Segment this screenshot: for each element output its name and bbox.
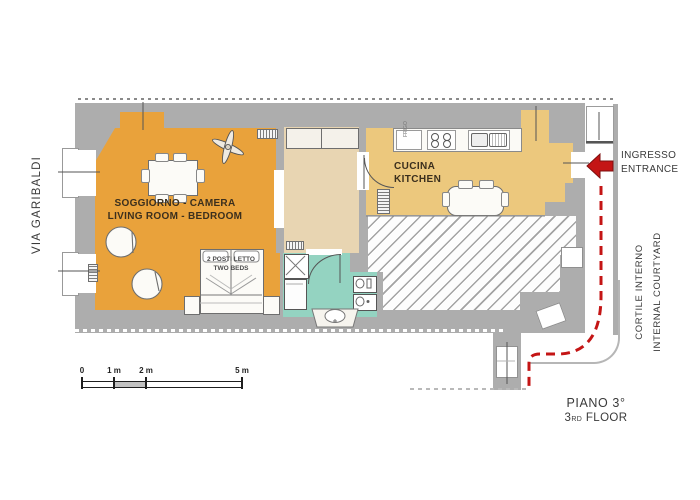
floor-label-it: PIANO 3°	[550, 395, 642, 411]
ceiling-fan-icon	[211, 130, 245, 165]
kitchen-label: CUCINA KITCHEN	[394, 160, 464, 186]
kitchen-label-it: CUCINA	[394, 160, 464, 173]
scale-label-2m: 2 m	[134, 366, 158, 375]
beds-label-en: TWO BEDS	[201, 264, 261, 273]
scale-tick	[113, 377, 115, 389]
entrance-label-en: ENTRANCE	[621, 163, 699, 177]
scale-bar-segment	[114, 382, 146, 387]
beds-label-it: 2 POSTI LETTO	[201, 255, 261, 264]
route-path	[529, 186, 601, 390]
street-label: VIA GARIBALDI	[31, 117, 45, 293]
entrance-label-it: INGRESSO	[621, 149, 699, 163]
armchair-icons	[106, 227, 162, 299]
entrance-label: INGRESSO ENTRANCE	[621, 149, 699, 177]
scale-label-1m: 1 m	[102, 366, 126, 375]
living-room-label-it: SOGGIORNO - CAMERA	[95, 198, 255, 211]
floor-ordinal: RD	[571, 416, 582, 423]
kitchen-label-en: KITCHEN	[394, 173, 464, 186]
dimension-ticks	[58, 102, 599, 384]
beds-label: 2 POSTI LETTO TWO BEDS	[201, 255, 261, 274]
scale-bar-line	[82, 381, 242, 388]
courtyard-label-it: CORTILE INTERNO	[634, 210, 646, 374]
floor-word: FLOOR	[582, 412, 627, 424]
floor-label-en: 3RD FLOOR	[550, 411, 642, 426]
scale-label-0: 0	[74, 366, 90, 375]
floor-label: PIANO 3° 3RD FLOOR	[550, 395, 642, 426]
scale-tick	[145, 377, 147, 389]
entrance-arrow-icon	[587, 154, 613, 178]
scale-tick	[81, 377, 83, 389]
living-room-label: SOGGIORNO - CAMERA LIVING ROOM - BEDROOM	[95, 198, 255, 223]
sink-vanity-icon	[312, 309, 358, 327]
shower-x	[286, 256, 305, 275]
scale-tick	[241, 377, 243, 389]
courtyard-label-en: INTERNAL COURTYARD	[652, 210, 664, 374]
scale-label-5m: 5 m	[230, 366, 254, 375]
floor-plan: FRIGO	[0, 0, 700, 500]
toilet-bidet-icons	[356, 279, 371, 306]
living-room-label-en: LIVING ROOM - BEDROOM	[95, 211, 255, 224]
